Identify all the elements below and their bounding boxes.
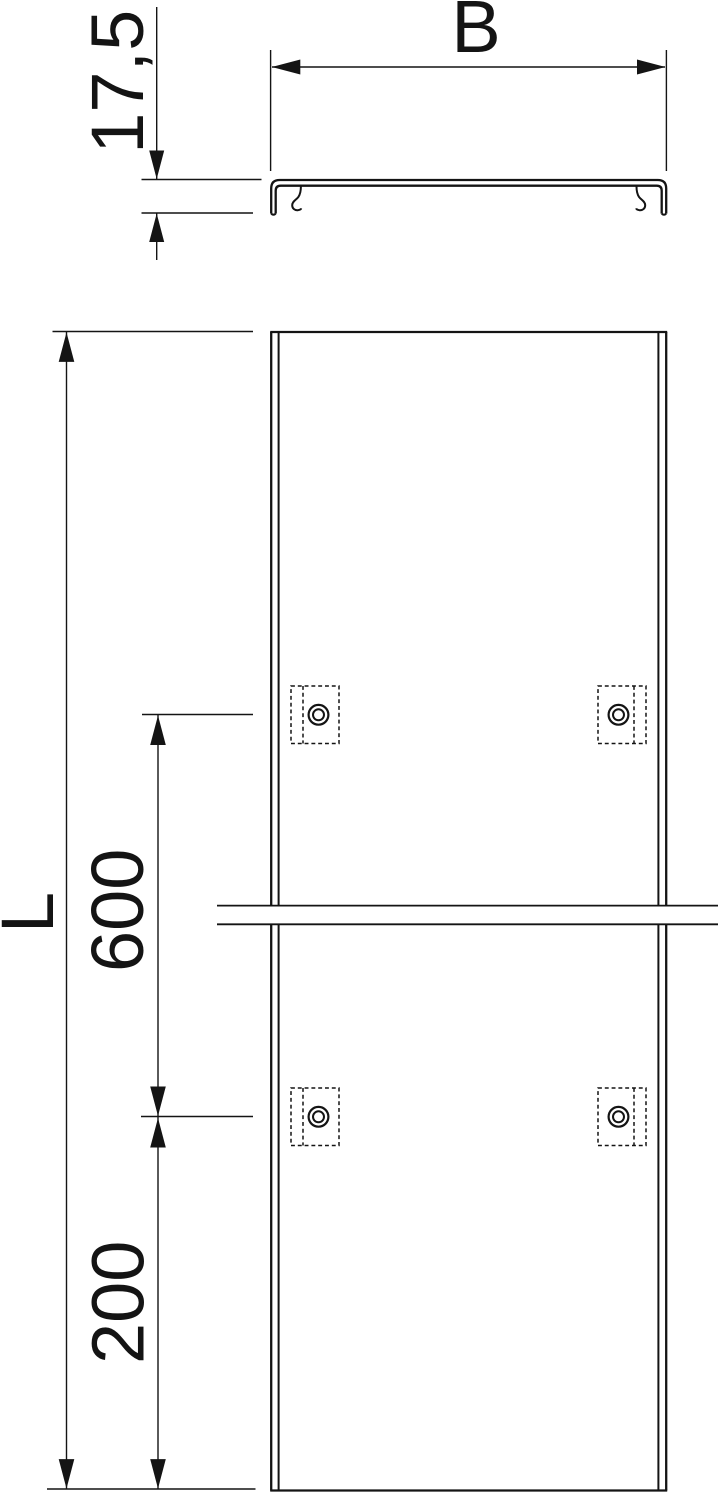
svg-text:600: 600 (76, 849, 159, 972)
svg-text:17,5: 17,5 (76, 10, 159, 154)
svg-text:L: L (0, 892, 69, 933)
svg-text:200: 200 (77, 1241, 160, 1364)
svg-text:B: B (451, 0, 500, 68)
